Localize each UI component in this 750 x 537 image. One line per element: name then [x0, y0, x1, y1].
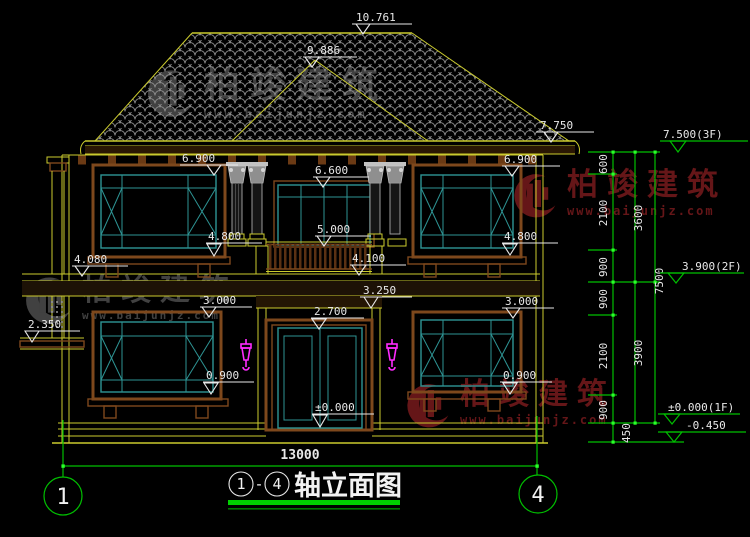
svg-text:4.080: 4.080	[74, 253, 107, 266]
svg-text:5.000: 5.000	[317, 223, 350, 236]
window-2f-left	[88, 165, 230, 277]
column	[246, 162, 268, 246]
elevation-marker-win-head-right: 3.000	[502, 295, 554, 318]
plinth	[52, 423, 548, 443]
elevation-marker-ridge: 10.761	[352, 11, 412, 34]
svg-text:3.250: 3.250	[363, 284, 396, 297]
svg-text:±0.000(1F): ±0.000(1F)	[668, 401, 734, 414]
svg-text:3.000: 3.000	[203, 294, 236, 307]
title-underline-thin	[228, 508, 400, 510]
overall-dim-text: 13000	[280, 448, 319, 463]
svg-text:3.000: 3.000	[505, 295, 538, 308]
elevation-marker-sill-1f-left: 0.900	[203, 369, 254, 394]
svg-text:7500: 7500	[653, 268, 666, 295]
pedestal	[256, 246, 268, 274]
svg-text:0.900: 0.900	[503, 369, 536, 382]
wall-lamp	[241, 339, 251, 370]
level-marker-2f: 3.900(2F)	[660, 260, 744, 283]
elevation-marker-win-head-left: 3.000	[200, 294, 252, 317]
column	[384, 162, 406, 246]
elevation-marker-sill-2f-right: 4.800	[502, 230, 558, 255]
svg-text:1: 1	[56, 485, 69, 510]
svg-text:4: 4	[272, 475, 281, 493]
svg-text:6.600: 6.600	[315, 164, 348, 177]
drawing-title: 1 - 4 轴立面图	[228, 470, 402, 510]
svg-text:450: 450	[620, 423, 633, 443]
svg-text:6.900: 6.900	[182, 152, 215, 165]
column	[364, 162, 386, 246]
svg-text:2100: 2100	[597, 343, 610, 370]
window-2f-right	[408, 165, 526, 277]
svg-text:3.900(2F): 3.900(2F)	[682, 260, 742, 273]
elevation-marker-sill-1f-right: 0.900	[500, 369, 552, 394]
svg-text:-: -	[254, 475, 263, 493]
small-awning	[20, 338, 84, 349]
svg-text:4.800: 4.800	[504, 230, 537, 243]
svg-text:4.800: 4.800	[208, 230, 241, 243]
cad-canvas: 柏竣建筑 www.baijunjz.com 柏竣建筑 www.baijunjz.…	[0, 0, 750, 537]
svg-text:900: 900	[597, 257, 610, 277]
dimension-chain: 600 2100 900 900 2100 900 450 3600 3900 …	[588, 128, 748, 444]
svg-text:1: 1	[236, 475, 245, 493]
level-marker-3f: 7.500(3F)	[660, 128, 748, 152]
svg-text:7.500(3F): 7.500(3F)	[663, 128, 723, 141]
elevation-marker-wall-top-right: 6.900	[502, 153, 560, 176]
window-1f-right	[408, 312, 526, 411]
svg-text:-0.450: -0.450	[686, 419, 726, 432]
elevation-marker-balcony-door: 6.600	[313, 164, 369, 187]
svg-text:0.900: 0.900	[206, 369, 239, 382]
title-text: 轴立面图	[294, 470, 402, 502]
svg-text:2.350: 2.350	[28, 318, 61, 331]
svg-text:3600: 3600	[632, 205, 645, 232]
window-sill	[408, 392, 526, 411]
svg-text:9.886: 9.886	[307, 44, 340, 57]
svg-text:2100: 2100	[597, 200, 610, 227]
svg-text:10.761: 10.761	[356, 11, 396, 24]
svg-text:±0.000: ±0.000	[315, 401, 355, 414]
svg-text:600: 600	[597, 154, 610, 174]
svg-text:4: 4	[531, 483, 544, 508]
svg-text:6.900: 6.900	[504, 153, 537, 166]
svg-text:7.750: 7.750	[540, 119, 573, 132]
wall-lamp	[387, 339, 397, 370]
window-sill	[88, 399, 228, 418]
svg-text:4.100: 4.100	[352, 252, 385, 265]
window-1f-left	[88, 312, 228, 418]
elevation-marker-ground-floor: ±0.000	[312, 401, 374, 427]
title-underline	[228, 500, 400, 505]
svg-text:900: 900	[597, 289, 610, 309]
svg-text:900: 900	[597, 400, 610, 420]
tick-dots	[612, 151, 657, 444]
svg-text:3900: 3900	[632, 340, 645, 367]
elevation-marker-railing: 5.000	[315, 223, 371, 246]
elevation-drawing: 10.761 9.886 7.750 6.900 6.900 6.600 5.0…	[0, 0, 750, 537]
svg-text:2.700: 2.700	[314, 305, 347, 318]
